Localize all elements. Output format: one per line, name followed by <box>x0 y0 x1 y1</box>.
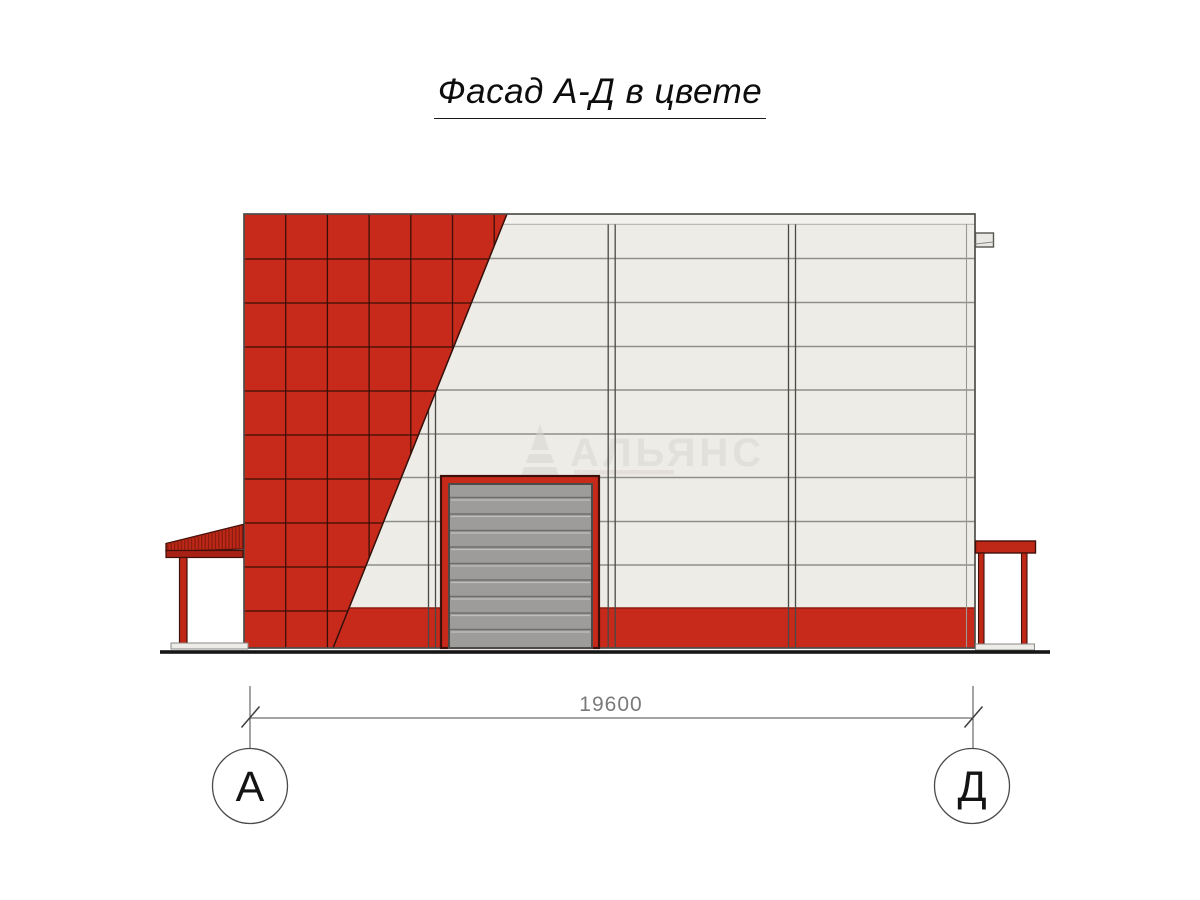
left-canopy <box>166 525 248 650</box>
axis-marker-a: А <box>213 749 288 824</box>
right-canopy-plinth <box>976 644 1035 650</box>
dimension-value: 19600 <box>579 693 642 716</box>
right-canopy-post-right <box>1022 553 1028 645</box>
right-canopy-post-left <box>979 553 985 645</box>
roof-scupper <box>976 233 994 247</box>
sectional-door <box>441 476 599 648</box>
axis-marker-d-label: Д <box>957 763 986 811</box>
right-canopy-beam <box>976 541 1036 553</box>
ground-line <box>160 650 1050 654</box>
right-canopy <box>976 541 1036 650</box>
left-canopy-post <box>180 558 188 646</box>
left-canopy-fascia <box>166 551 243 558</box>
dimension-line: 19600 <box>242 686 983 748</box>
axis-marker-d: Д <box>935 749 1010 824</box>
left-canopy-plinth <box>171 643 248 649</box>
socle-strip <box>244 608 975 648</box>
drawing-sheet: Фасад А-Д в цвете <box>0 0 1200 900</box>
watermark-subtext-bar <box>574 470 674 475</box>
watermark-text: АЛЬЯНС <box>570 431 765 475</box>
axis-marker-a-label: А <box>236 763 265 811</box>
facade-elevation-drawing: АЛЬЯНС <box>0 0 1200 900</box>
